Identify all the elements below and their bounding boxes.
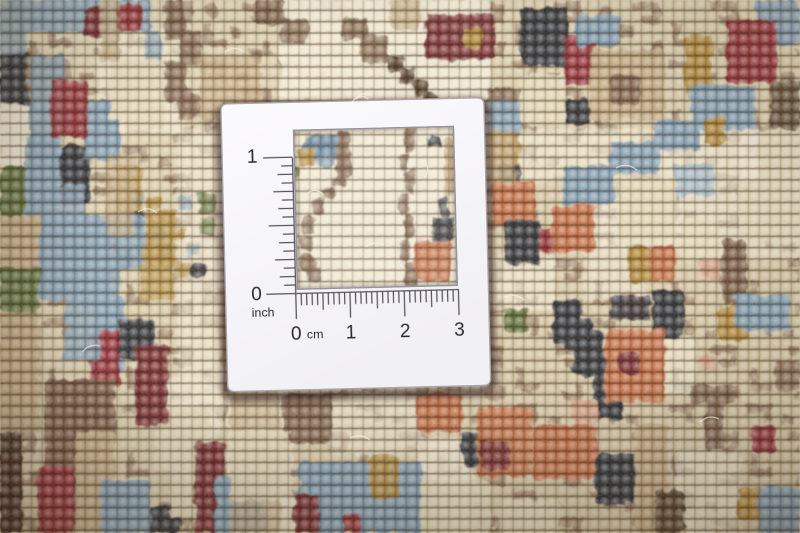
svg-text:1: 1 bbox=[247, 147, 258, 168]
svg-text:3: 3 bbox=[454, 320, 465, 341]
svg-text:0: 0 bbox=[291, 324, 302, 345]
svg-text:cm: cm bbox=[307, 327, 324, 341]
svg-text:inch: inch bbox=[252, 305, 275, 320]
svg-text:0: 0 bbox=[251, 284, 262, 305]
svg-text:2: 2 bbox=[400, 321, 411, 342]
svg-text:1: 1 bbox=[345, 322, 356, 343]
